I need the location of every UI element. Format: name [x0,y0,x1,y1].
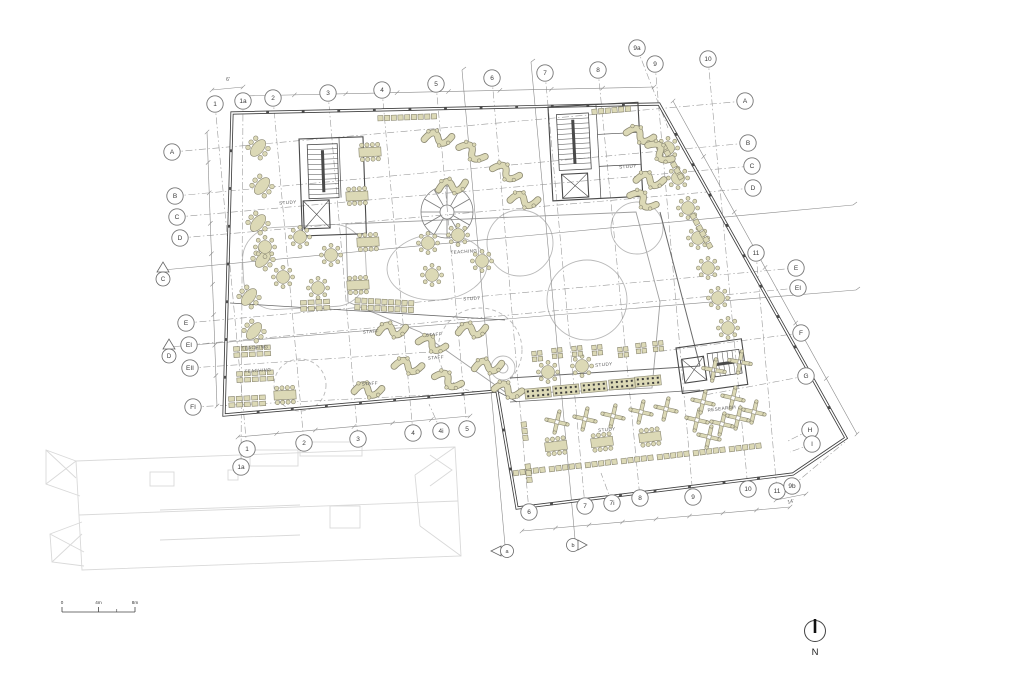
scale-bar-label: 0 [61,600,64,605]
grid-bubble-label: F [799,330,803,337]
furniture-round8 [271,265,294,288]
grid-bubble-label: FI [190,404,196,411]
furniture-rect8 [590,431,614,452]
grid-bubble-label: 6 [527,509,531,516]
grid-bubble-9: 9 [647,56,663,72]
grid-bubble-label: 10 [704,56,712,63]
grid-bubble-label: C [750,163,755,170]
north-label: N [812,647,819,658]
grid-bubble-label: B [746,140,750,147]
grid-bubble-label: 8 [596,67,600,74]
grid-bubble-label: 7 [583,503,587,510]
grid-bubble-label: 9 [653,61,657,68]
grid-bubble-label: 5 [465,426,469,433]
grid-bubble-label: 5 [434,81,438,88]
furniture-bench [525,387,552,399]
dimension-label: 14' [787,498,795,505]
grid-bubble-9a: 9a [629,40,645,56]
furniture-rect8 [274,385,297,405]
grid-bubble-E: E [788,260,804,276]
grid-bubble-label: 1 [245,446,249,453]
furniture-round8 [306,276,329,299]
grid-bubble-label: 10 [744,486,752,493]
grid-bubble-label: 1 [213,101,217,108]
ghost-building-layer [46,442,461,570]
grid-bubble-4: 4 [374,82,390,98]
furniture-round8 [716,316,739,339]
furniture-round8 [706,286,729,309]
furniture-rect8 [347,275,370,295]
grid-bubble-D: D [172,230,188,246]
grid-bubble-label: 1a [239,98,247,105]
grid-bubble-label: 11 [774,488,781,495]
grid-bubble-label: 4i [438,428,443,435]
furniture-rect8 [638,426,662,447]
grid-bubble-11: 11 [748,245,764,261]
furniture-bench [635,375,662,387]
furniture-rect8 [357,232,380,252]
grid-bubble-C: C [744,158,760,174]
grid-bubble-label: E [184,320,189,327]
furniture-round8 [253,235,276,258]
furniture-rect8 [346,186,369,206]
furniture-bench [609,378,636,390]
floor-plan-svg: 11a23456789a910ABCDEEIEIIFIABCD11EEIFGHI… [0,0,1024,683]
grid-bubble-4i: 4i [433,423,449,439]
grid-bubble-label: 4 [380,87,384,94]
furniture-round8 [420,263,443,286]
grid-bubble-9: 9 [685,489,701,505]
section-marker-label: C [161,277,166,283]
grid-bubble-C: C [169,209,185,225]
grid-bubble-1: 1 [207,96,223,112]
grid-bubble-EII: EII [182,360,198,376]
section-marker-a: a [491,545,514,558]
grid-bubble-6: 6 [484,70,500,86]
scale-bar-label: 4m [95,600,102,605]
grid-bubble-7: 7 [577,498,593,514]
grid-bubble-D: D [745,180,761,196]
grid-bubble-label: 9b [788,483,796,490]
grid-bubble-1: 1 [239,441,255,457]
furniture-round8 [536,360,559,383]
grid-bubble-label: 7 [543,70,547,77]
furniture-rect8 [544,435,568,456]
grid-bubble-E: E [178,315,194,331]
grid-bubble-label: 11 [753,250,760,257]
room-label: STUDY [463,296,481,302]
grid-bubble-label: A [743,98,748,105]
section-marker-label: b [571,543,574,549]
grid-bubble-11: 11 [769,483,785,499]
scale-bar-label: 8m [132,600,139,605]
furniture-round8 [319,243,342,266]
grid-bubble-label: 3 [326,90,330,97]
grid-bubble-10: 10 [740,481,756,497]
grid-bubble-label: 7i [609,500,614,507]
section-marker-b: b [567,539,588,552]
grid-bubble-label: E [794,265,799,272]
grid-bubble-3: 3 [350,431,366,447]
grid-bubble-label: B [173,193,177,200]
grid-bubble-1a: 1a [235,93,251,109]
floor-plan-sheet: 11a23456789a910ABCDEEIEIIFIABCD11EEIFGHI… [0,0,1024,683]
furniture-round8 [446,223,469,246]
grid-bubble-label: 3 [356,436,360,443]
grid-bubble-label: G [803,373,808,380]
grid-bubble-EI: EI [181,337,197,353]
grid-bubble-2: 2 [296,435,312,451]
grid-bubble-A: A [164,144,180,160]
grid-bubble-label: H [808,427,813,434]
grid-bubble-label: 9a [633,45,641,52]
grid-bubble-6: 6 [521,504,537,520]
grid-bubble-7i: 7i [604,495,620,511]
grid-bubble-1a: 1a [233,459,249,475]
grid-bubble-label: C [175,214,180,221]
grid-bubble-7: 7 [537,65,553,81]
grid-bubble-F: F [793,325,809,341]
ghost-roof-plan [46,442,461,570]
grid-bubble-8: 8 [590,62,606,78]
grid-bubble-10: 10 [700,51,716,67]
grid-bubble-label: EI [795,285,801,292]
grid-bubble-label: EII [186,365,194,372]
grid-bubble-label: 2 [271,95,275,102]
grid-bubble-B: B [167,188,183,204]
grid-bubble-3: 3 [320,85,336,101]
furniture-round8 [570,354,593,377]
grid-bubble-G: G [798,368,814,384]
grid-bubble-5: 5 [459,421,475,437]
grid-bubble-I: I [804,436,820,452]
grid-bubble-label: 4 [411,430,415,437]
grid-bubble-8: 8 [632,490,648,506]
grid-bubble-label: 2 [302,440,306,447]
section-marker-C: C [156,262,170,286]
grid-bubble-5: 5 [428,76,444,92]
grid-bubble-A: A [737,93,753,109]
section-marker-label: D [167,354,172,360]
grid-bubble-FI: FI [185,399,201,415]
grid-bubble-label: 8 [638,495,642,502]
grid-bubble-label: I [811,441,813,448]
grid-bubble-label: A [170,149,175,156]
furniture-round8 [696,256,719,279]
grid-bubble-2: 2 [265,90,281,106]
grid-bubble-B: B [740,135,756,151]
grid-bubble-label: D [178,235,183,242]
grid-bubble-label: 9 [691,494,695,501]
furniture-rect8 [359,142,382,162]
grid-bubble-4: 4 [405,425,421,441]
furniture-round8 [416,231,439,254]
grid-bubble-label: 6 [490,75,494,82]
furniture-bench [553,384,580,396]
scale-bar: 04m8m [61,600,139,612]
grid-bubble-9b: 9b [784,478,800,494]
furniture-round8 [288,225,311,248]
grid-bubble-label: EI [186,342,192,349]
dimension-label: 6' [226,77,230,83]
north-arrow: N [805,619,826,658]
grid-bubble-label: 1a [237,464,245,471]
section-marker-D: D [162,339,176,363]
furniture-bench [581,381,608,393]
grid-bubble-label: D [751,185,756,192]
grid-bubble-EI: EI [790,280,806,296]
